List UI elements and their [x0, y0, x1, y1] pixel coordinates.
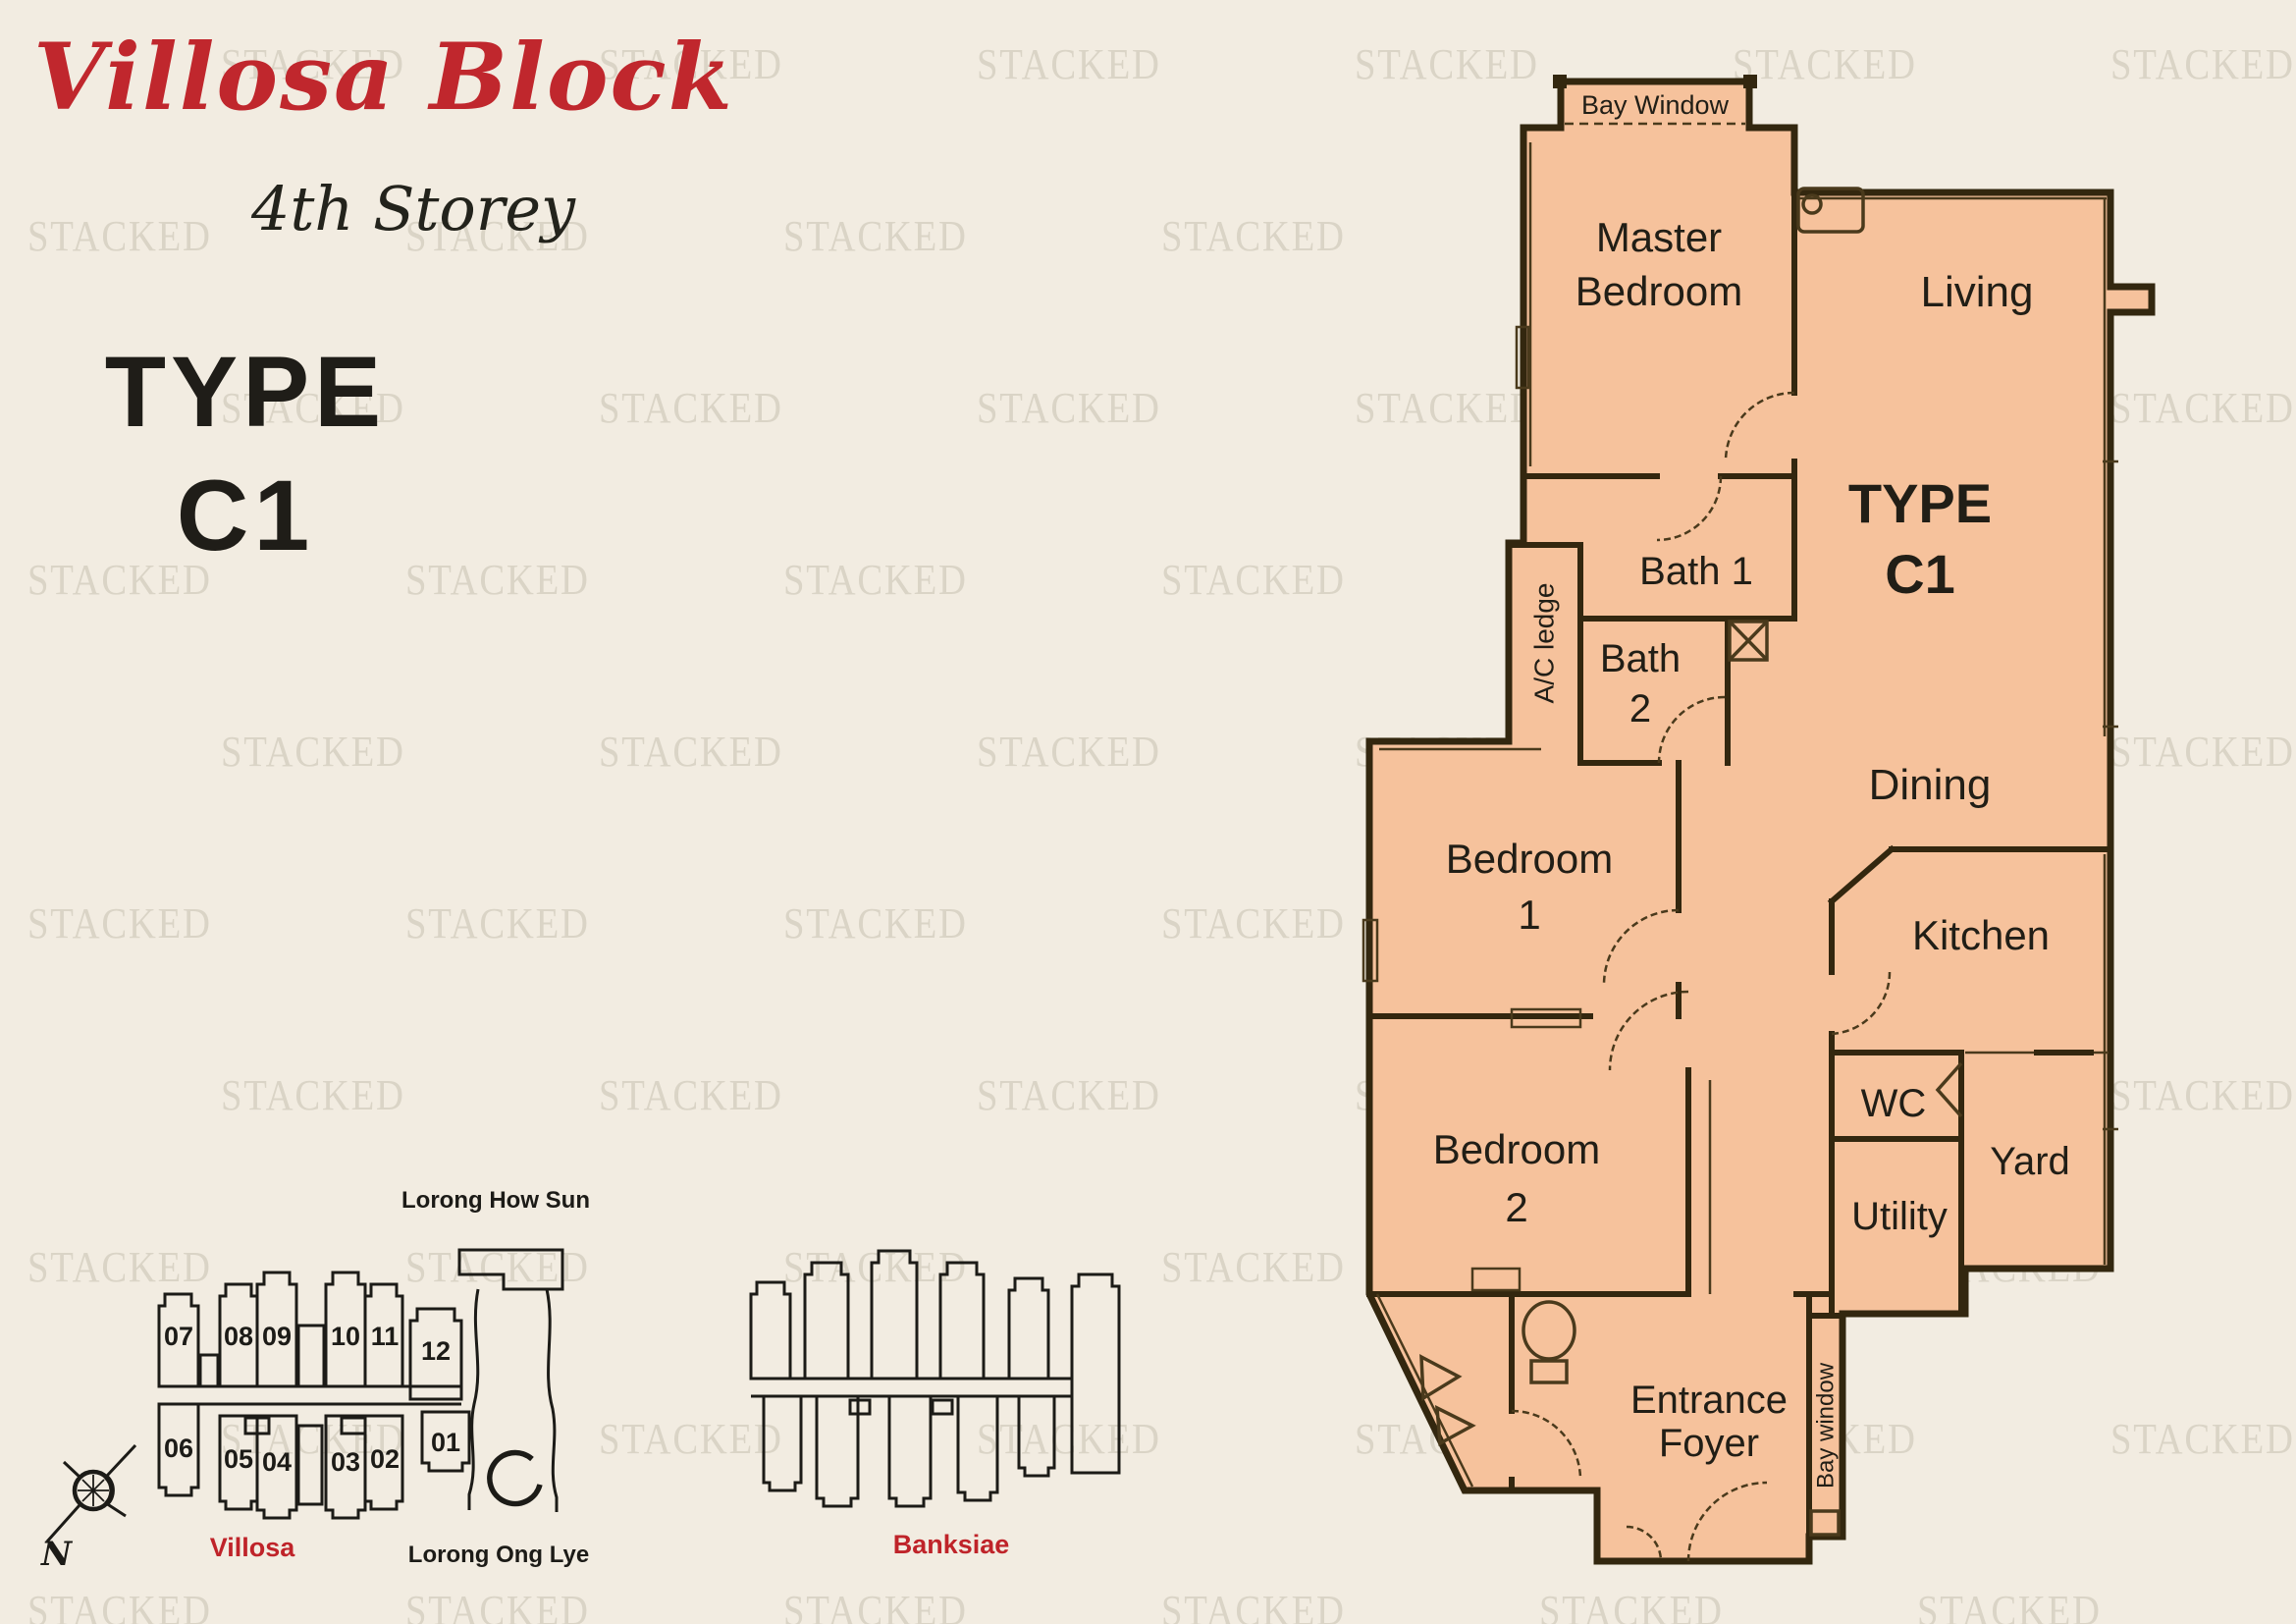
room-label-bay-window-top: Bay Window: [1581, 90, 1730, 120]
watermark-text: STACKED: [1161, 898, 1346, 948]
watermark-text: STACKED: [977, 383, 1161, 433]
watermark-text: STACKED: [405, 898, 590, 948]
room-label-bedroom1-line1: Bedroom: [1446, 836, 1613, 882]
watermark-text: STACKED: [599, 727, 783, 777]
block-label-villosa: Villosa: [210, 1533, 296, 1562]
unit-number-03: 03: [331, 1447, 360, 1477]
watermark-text: STACKED: [977, 727, 1161, 777]
room-label-entrance-foyer-line2: Foyer: [1659, 1422, 1759, 1465]
site-block-banksiae-outline: [751, 1251, 1119, 1506]
plan-type-line2: C1: [1885, 543, 1955, 605]
watermark-text: STACKED: [977, 1070, 1161, 1120]
unit-number-07: 07: [164, 1322, 193, 1351]
plan-type-line1: TYPE: [1848, 472, 1992, 534]
floor-plan: Bay Window Master Bedroom Living TYPE C1…: [1355, 49, 2199, 1610]
room-label-bedroom2-line1: Bedroom: [1433, 1126, 1600, 1172]
room-label-bath2-line2: 2: [1629, 687, 1651, 731]
site-block-villosa-outline: [159, 1272, 469, 1518]
room-label-master-bedroom-line2: Bedroom: [1575, 268, 1742, 314]
unit-number-10: 10: [331, 1322, 360, 1351]
unit-number-02: 02: [370, 1444, 400, 1474]
page: STACKEDSTACKEDSTACKEDSTACKEDSTACKEDSTACK…: [0, 0, 2296, 1624]
site-plan: N Lorong How Sun Lorong Ong Lye Villosa …: [20, 1168, 1188, 1620]
unit-type-label: TYPE C1: [80, 330, 410, 578]
site-driveway: [459, 1250, 562, 1512]
room-label-master-bedroom-line1: Master: [1596, 214, 1722, 260]
compass-north-label: N: [40, 1535, 74, 1574]
watermark-text: STACKED: [1161, 1586, 1346, 1624]
room-label-ac-ledge: A/C ledge: [1529, 583, 1560, 704]
room-label-dining: Dining: [1869, 761, 1992, 809]
compass-icon: N: [40, 1445, 135, 1574]
room-label-entrance-foyer-line1: Entrance: [1630, 1379, 1788, 1422]
watermark-text: STACKED: [1161, 211, 1346, 261]
unit-number-08: 08: [224, 1322, 253, 1351]
watermark-text: STACKED: [783, 211, 968, 261]
room-label-living: Living: [1921, 268, 2034, 316]
watermark-text: STACKED: [405, 555, 590, 605]
room-label-yard: Yard: [1990, 1140, 2070, 1183]
unit-number-09: 09: [262, 1322, 292, 1351]
unit-number-05: 05: [224, 1444, 253, 1474]
unit-number-04: 04: [262, 1447, 292, 1477]
bay-window-post: [1743, 75, 1757, 88]
unit-type-line1: TYPE: [80, 330, 410, 454]
watermark-text: STACKED: [783, 555, 968, 605]
room-label-kitchen: Kitchen: [1912, 912, 2050, 958]
watermark-text: STACKED: [783, 898, 968, 948]
road-label-top: Lorong How Sun: [401, 1187, 590, 1214]
watermark-text: STACKED: [599, 1070, 783, 1120]
plan-storey: 4th Storey: [251, 173, 575, 244]
watermark-text: STACKED: [27, 898, 212, 948]
watermark-text: STACKED: [599, 383, 783, 433]
watermark-text: STACKED: [977, 39, 1161, 89]
watermark-text: STACKED: [221, 727, 405, 777]
watermark-text: STACKED: [1161, 555, 1346, 605]
room-label-wc: WC: [1861, 1082, 1927, 1125]
plan-title: Villosa Block: [33, 24, 734, 132]
room-label-bath1: Bath 1: [1639, 550, 1753, 593]
unit-type-line2: C1: [80, 454, 410, 577]
room-label-bay-window-side: Bay window: [1813, 1362, 1840, 1489]
watermark-text: STACKED: [221, 1070, 405, 1120]
unit-number-01: 01: [431, 1428, 460, 1457]
unit-number-11: 11: [371, 1322, 400, 1351]
unit-number-12: 12: [421, 1336, 451, 1366]
room-label-bath2-line1: Bath: [1600, 637, 1681, 680]
road-label-bottom: Lorong Ong Lye: [408, 1542, 589, 1568]
unit-number-06: 06: [164, 1434, 193, 1463]
apartment-outline: [1369, 81, 2152, 1561]
room-label-bedroom2-line2: 2: [1505, 1184, 1527, 1230]
room-label-utility: Utility: [1851, 1195, 1948, 1238]
bay-window-post: [1553, 75, 1567, 88]
block-label-banksiae: Banksiae: [893, 1530, 1010, 1559]
watermark-text: STACKED: [1161, 1242, 1346, 1292]
room-label-bedroom1-line2: 1: [1518, 892, 1540, 938]
watermark-text: STACKED: [27, 211, 212, 261]
